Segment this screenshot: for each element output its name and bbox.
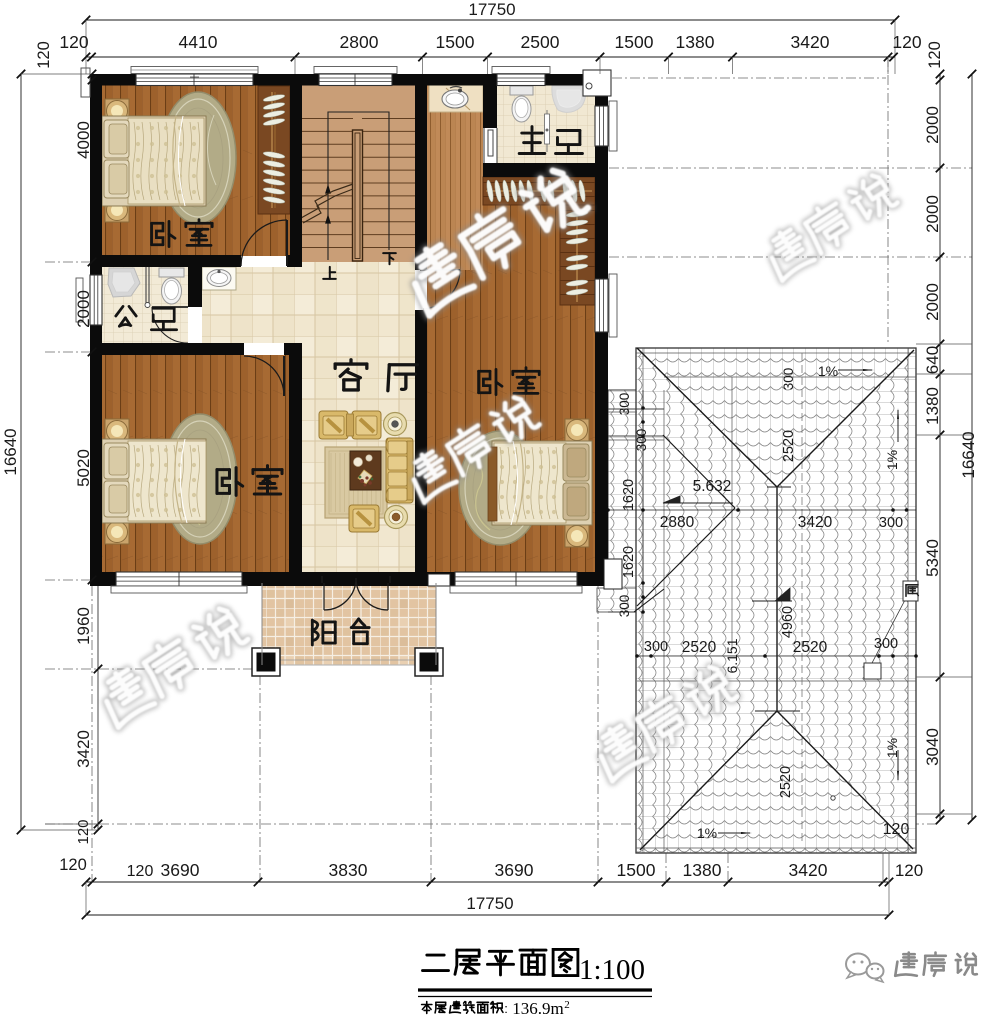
svg-text:3040: 3040 xyxy=(923,728,942,766)
svg-text:17750: 17750 xyxy=(466,894,513,913)
svg-text:300: 300 xyxy=(874,636,898,652)
svg-text:1380: 1380 xyxy=(676,32,715,52)
svg-text::: : xyxy=(504,1001,508,1016)
svg-text:5.632: 5.632 xyxy=(693,478,732,495)
svg-text:120: 120 xyxy=(895,861,923,880)
svg-text:3420: 3420 xyxy=(74,730,93,768)
svg-text:1%: 1% xyxy=(884,450,900,470)
svg-text:1%: 1% xyxy=(697,825,717,841)
svg-text:300: 300 xyxy=(617,595,632,618)
svg-text:120: 120 xyxy=(926,41,944,69)
svg-text:2520: 2520 xyxy=(778,766,794,798)
svg-text:6.151: 6.151 xyxy=(724,638,740,673)
svg-text:2880: 2880 xyxy=(660,514,695,531)
svg-text:2000: 2000 xyxy=(923,106,942,144)
svg-text:120: 120 xyxy=(892,32,921,52)
svg-text:4000: 4000 xyxy=(74,121,93,159)
svg-text:1500: 1500 xyxy=(615,32,654,52)
svg-text:1620: 1620 xyxy=(621,546,637,578)
svg-text:1500: 1500 xyxy=(617,860,656,880)
svg-text:16640: 16640 xyxy=(959,431,978,478)
svg-text:2500: 2500 xyxy=(521,32,560,52)
svg-text:2: 2 xyxy=(564,999,570,1011)
svg-text:300: 300 xyxy=(644,639,668,655)
svg-text:17750: 17750 xyxy=(468,0,515,19)
svg-text:640: 640 xyxy=(923,346,942,374)
svg-text:300: 300 xyxy=(634,429,649,452)
svg-text:120: 120 xyxy=(75,819,92,844)
svg-text:1500: 1500 xyxy=(436,32,475,52)
svg-text:300: 300 xyxy=(781,368,796,391)
svg-text:2000: 2000 xyxy=(923,195,942,233)
svg-text:1%: 1% xyxy=(818,363,838,379)
svg-text:3690: 3690 xyxy=(161,860,200,880)
svg-text:5020: 5020 xyxy=(74,449,93,487)
svg-text:3830: 3830 xyxy=(329,860,368,880)
svg-text:2000: 2000 xyxy=(923,283,942,321)
svg-text:300: 300 xyxy=(879,515,903,531)
svg-text:120: 120 xyxy=(59,32,88,52)
svg-text:120: 120 xyxy=(59,856,87,874)
svg-text:300: 300 xyxy=(617,393,632,416)
svg-text:1380: 1380 xyxy=(923,387,942,425)
svg-text:120: 120 xyxy=(127,863,154,880)
svg-text:3420: 3420 xyxy=(798,514,833,531)
svg-text:2520: 2520 xyxy=(682,639,717,656)
svg-text:5340: 5340 xyxy=(923,539,942,577)
svg-text:16640: 16640 xyxy=(1,428,20,475)
svg-text:2520: 2520 xyxy=(793,639,828,656)
svg-text:3420: 3420 xyxy=(789,860,828,880)
svg-text:120: 120 xyxy=(883,821,910,838)
svg-text:4410: 4410 xyxy=(179,32,218,52)
svg-text:120: 120 xyxy=(35,41,53,69)
svg-text:1380: 1380 xyxy=(683,860,722,880)
svg-text:1960: 1960 xyxy=(74,607,93,645)
svg-text:4960: 4960 xyxy=(780,606,796,638)
svg-text:136.9m: 136.9m xyxy=(512,999,563,1018)
svg-text:3690: 3690 xyxy=(495,860,534,880)
svg-text:3420: 3420 xyxy=(791,32,830,52)
svg-text:2520: 2520 xyxy=(781,430,797,462)
svg-text:1:100: 1:100 xyxy=(579,954,645,986)
svg-text:2000: 2000 xyxy=(74,290,93,328)
svg-text:1620: 1620 xyxy=(621,479,637,511)
svg-text:2800: 2800 xyxy=(340,32,379,52)
